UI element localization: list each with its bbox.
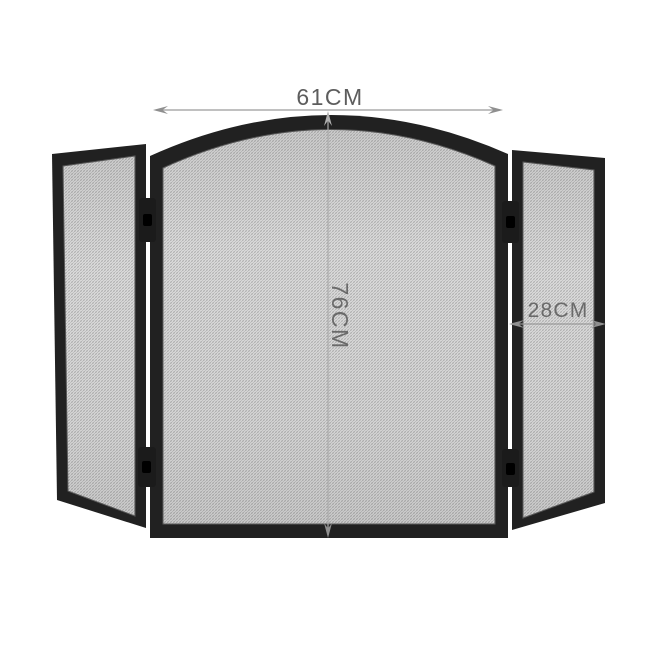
- right-top-hinge-knuckle: [506, 216, 515, 228]
- left-top-hinge-knuckle: [143, 214, 152, 226]
- fire-screen-dimension-diagram: 61CM 76CM 28CM: [0, 0, 652, 652]
- left-panel-mesh-shading: [63, 156, 135, 516]
- width-dimension: 61CM: [153, 84, 503, 114]
- right-bottom-hinge-knuckle: [506, 463, 515, 475]
- height-dimension-label: 76CM: [327, 282, 353, 349]
- left-panel: [52, 144, 146, 528]
- right-panel: [512, 150, 605, 530]
- product-image: 61CM 76CM 28CM: [0, 0, 652, 652]
- left-bottom-hinge-knuckle: [142, 461, 151, 473]
- right-panel-mesh-shading: [523, 162, 594, 518]
- width-dimension-label: 61CM: [296, 84, 363, 110]
- side-dimension-label: 28CM: [528, 299, 589, 322]
